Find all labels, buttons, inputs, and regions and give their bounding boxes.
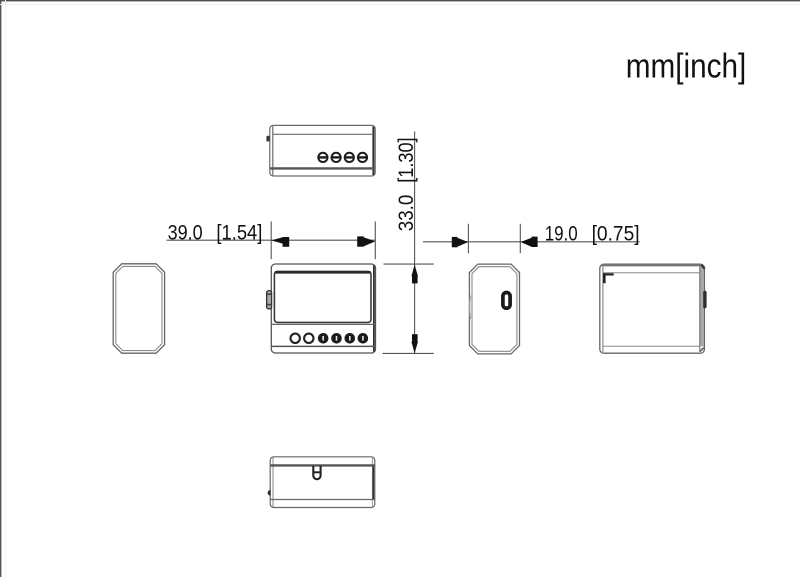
svg-text:19.0: 19.0 — [545, 223, 578, 246]
svg-text:[1.54]: [1.54] — [216, 221, 262, 244]
svg-text:[0.75]: [0.75] — [592, 223, 640, 246]
svg-text:33.0: 33.0 — [395, 195, 418, 232]
svg-text:mm[inch]: mm[inch] — [626, 48, 747, 86]
svg-text:39.0: 39.0 — [168, 221, 203, 244]
svg-text:[1.30]: [1.30] — [395, 137, 418, 182]
